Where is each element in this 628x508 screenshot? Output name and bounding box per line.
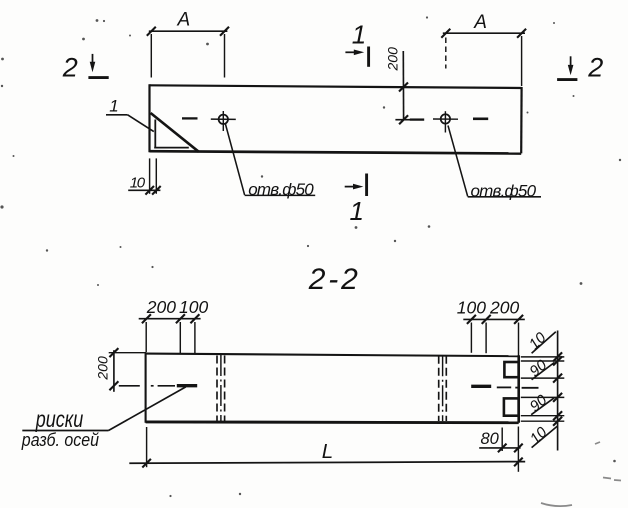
svg-text:2-2: 2-2: [308, 263, 361, 296]
svg-text:200: 200: [385, 47, 401, 72]
svg-text:200: 200: [95, 356, 111, 381]
svg-text:80: 80: [481, 430, 500, 448]
svg-text:200: 200: [146, 297, 176, 317]
svg-text:200: 200: [489, 298, 519, 318]
svg-text:1: 1: [109, 96, 118, 115]
svg-text:A: A: [177, 10, 191, 31]
svg-text:разб. осей: разб. осей: [21, 429, 100, 450]
svg-text:L: L: [322, 440, 333, 463]
svg-text:отв.ф50: отв.ф50: [471, 181, 537, 200]
svg-text:100: 100: [457, 298, 486, 318]
svg-text:1: 1: [352, 19, 366, 49]
svg-text:1: 1: [350, 196, 364, 226]
svg-text:A: A: [473, 12, 487, 33]
svg-text:10: 10: [130, 175, 146, 192]
svg-text:2: 2: [62, 53, 78, 83]
svg-text:2: 2: [587, 53, 603, 83]
svg-text:отв.ф50: отв.ф50: [248, 180, 314, 199]
svg-text:100: 100: [179, 297, 208, 317]
